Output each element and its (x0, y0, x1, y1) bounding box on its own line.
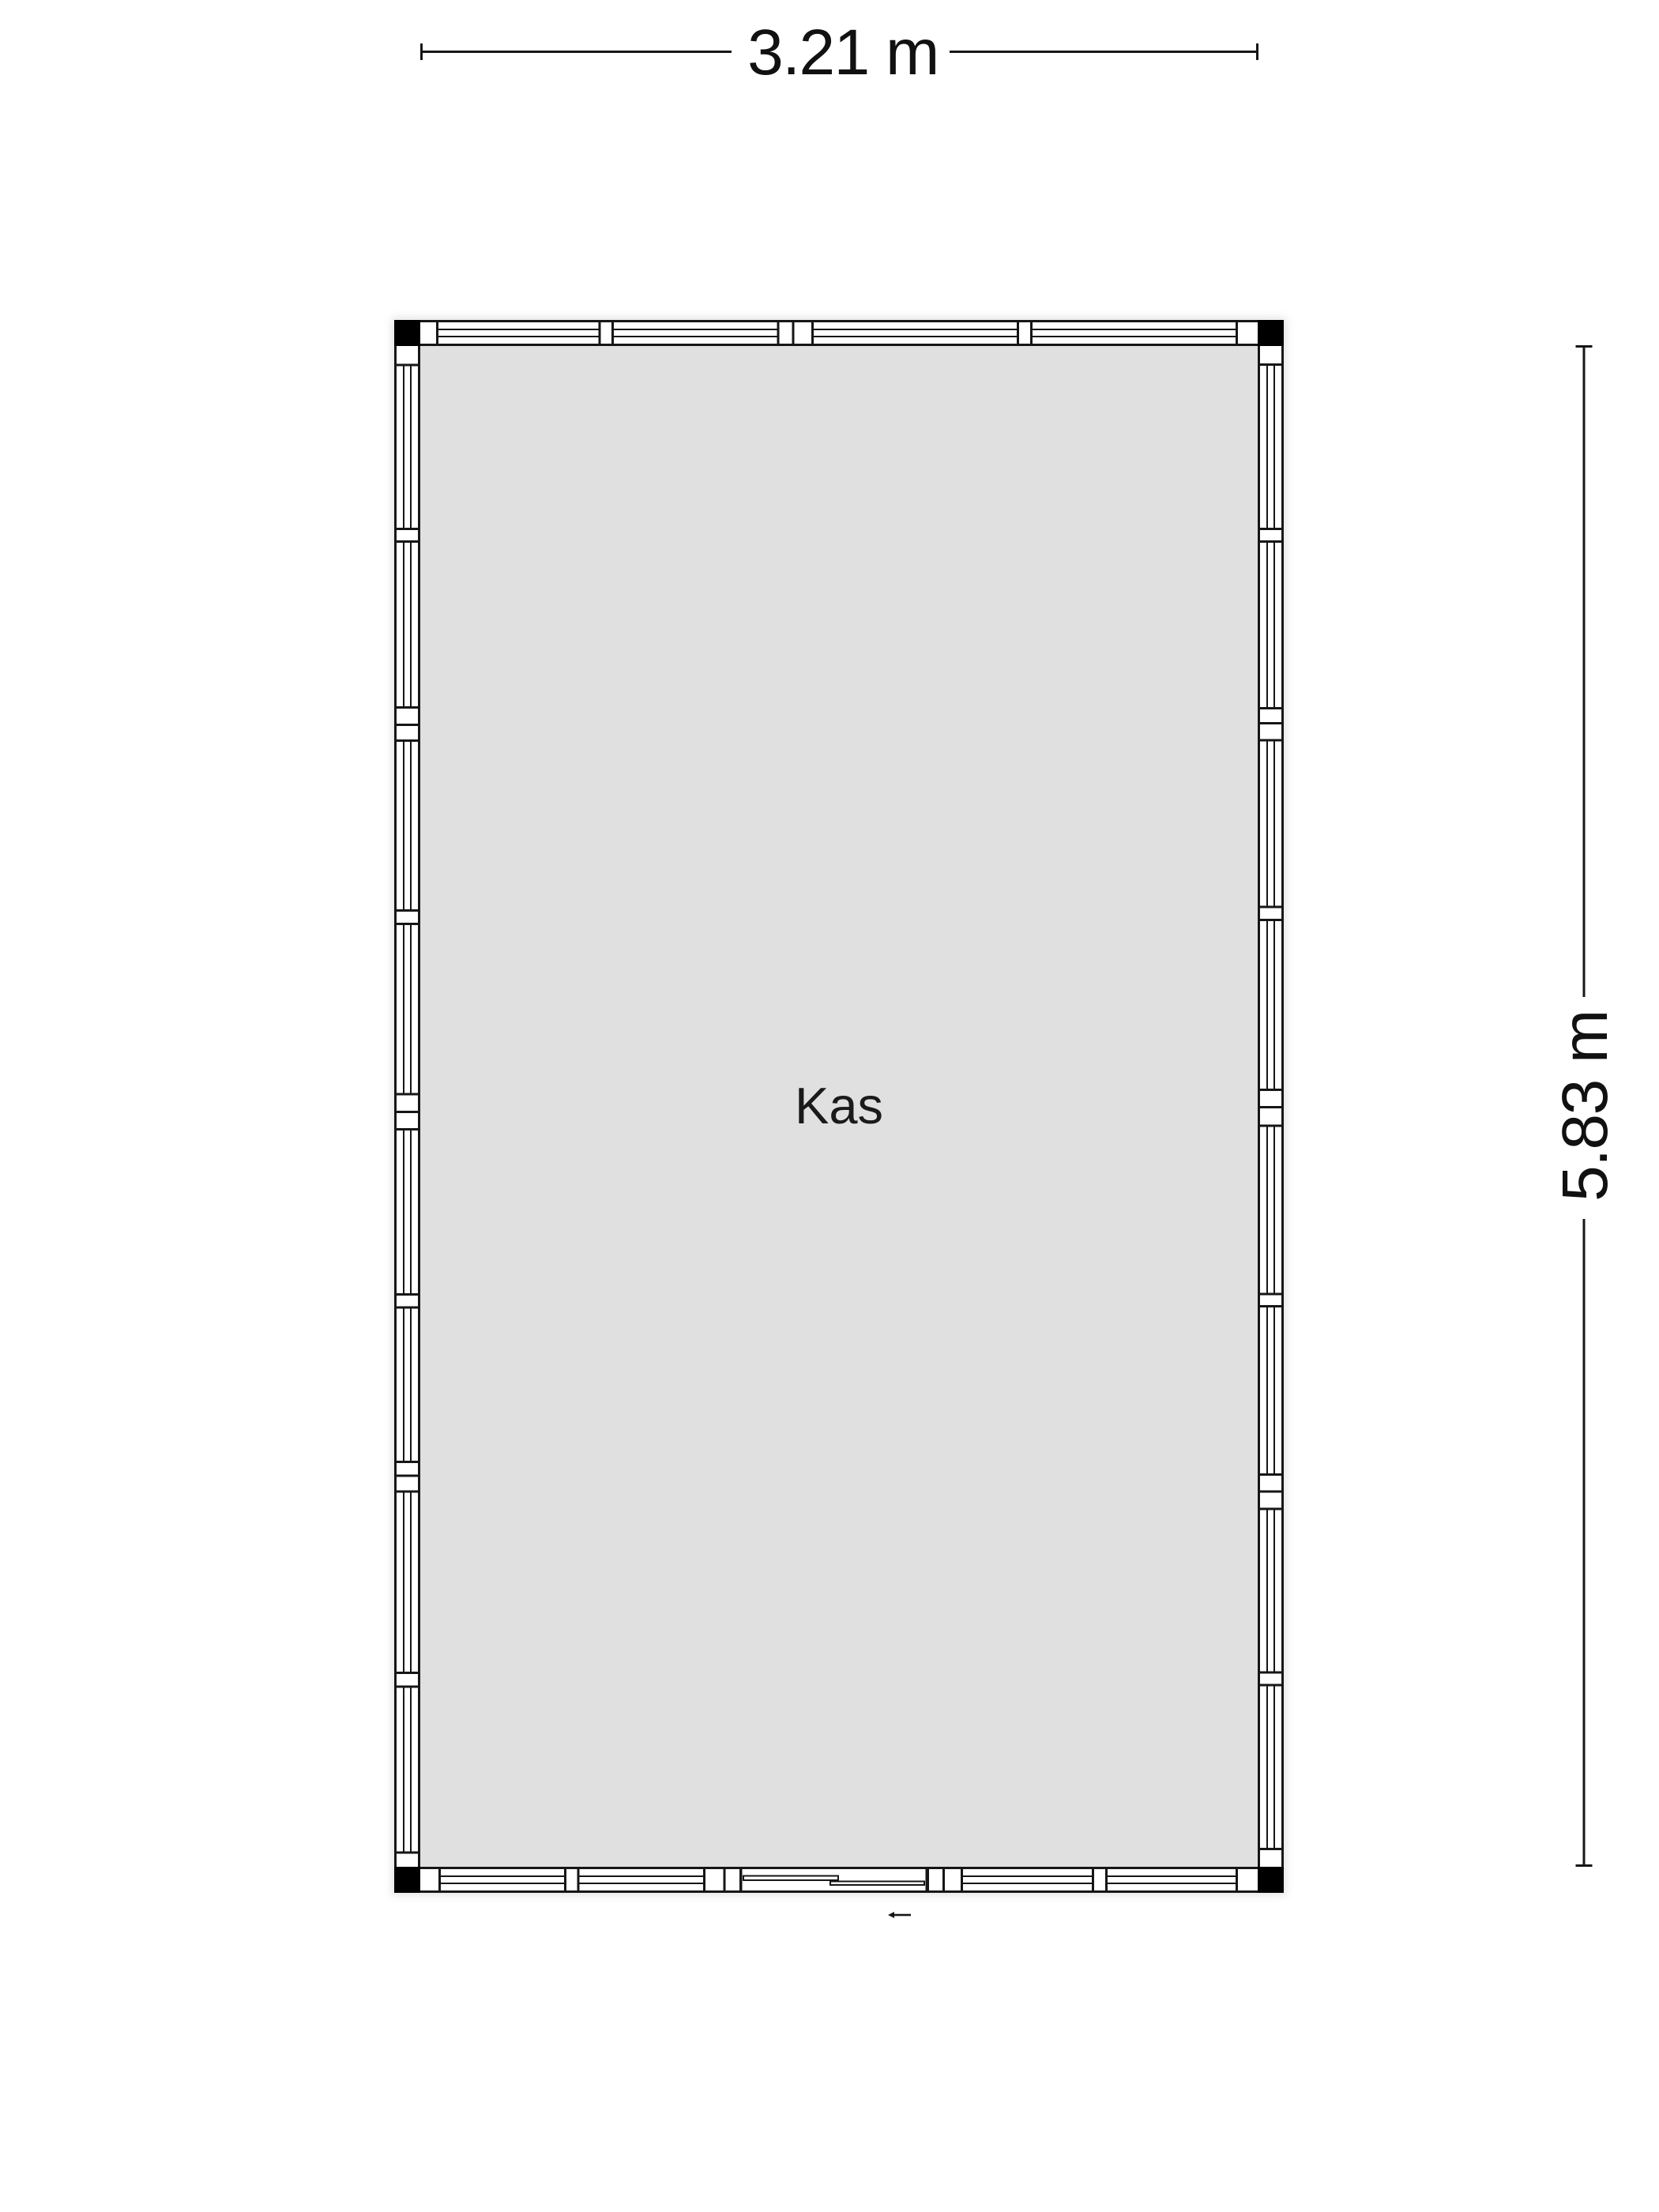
svg-text:3.21 m: 3.21 m (747, 17, 939, 88)
svg-text:Kas: Kas (795, 1077, 883, 1134)
svg-text:5.83 m: 5.83 m (1549, 1010, 1621, 1202)
